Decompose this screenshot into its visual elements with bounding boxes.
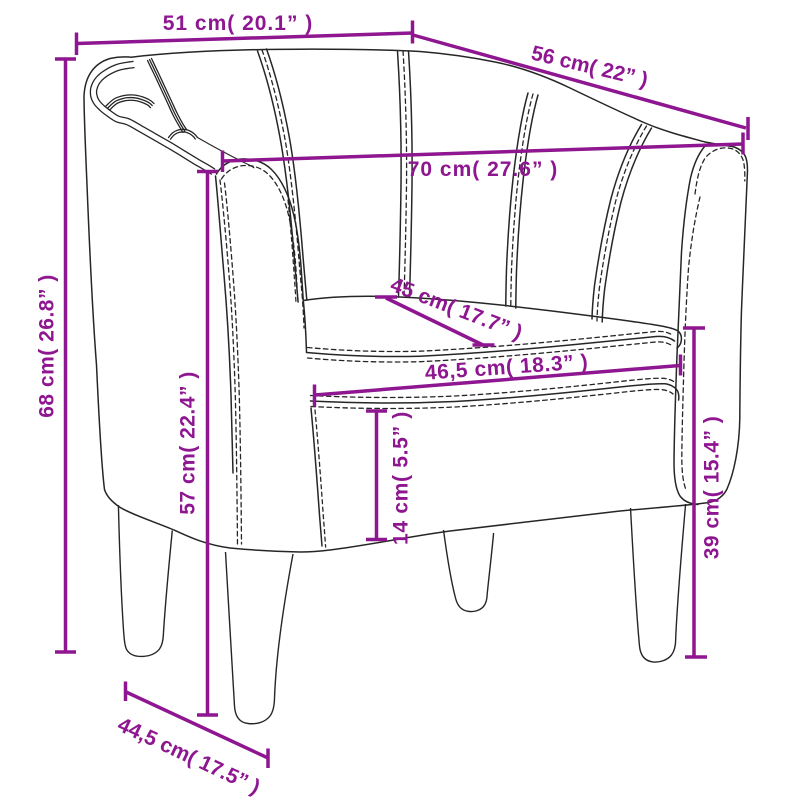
svg-text:51 cm( 20.1” ): 51 cm( 20.1” ) — [163, 12, 314, 35]
svg-text:39 cm( 15.4” ): 39 cm( 15.4” ) — [701, 416, 724, 560]
svg-text:57 cm( 22.4” ): 57 cm( 22.4” ) — [177, 371, 200, 515]
svg-text:68 cm( 26.8” ): 68 cm( 26.8” ) — [36, 274, 59, 418]
svg-text:14 cm( 5.5” ): 14 cm( 5.5” ) — [390, 411, 413, 545]
svg-text:70 cm( 27.6” ): 70 cm( 27.6” ) — [408, 158, 559, 181]
